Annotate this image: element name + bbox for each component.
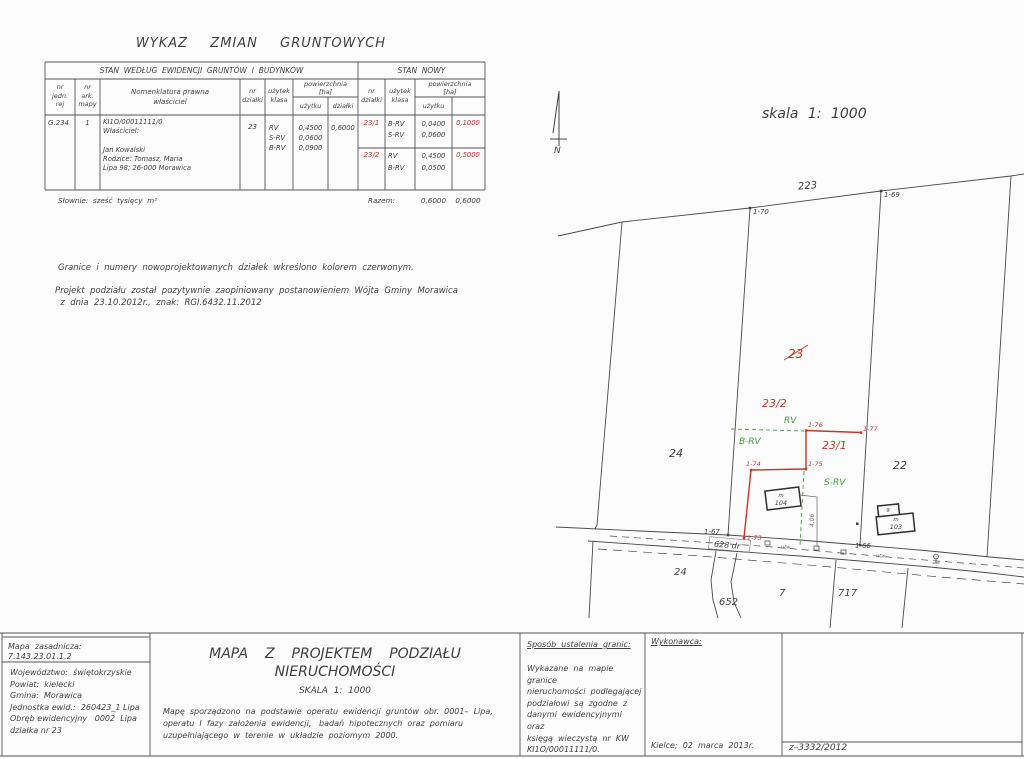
- boundary-point-markers: [727, 190, 883, 547]
- point-1-66: 1-66: [855, 542, 871, 550]
- sheet-scale: SKALA 1: 1000: [152, 686, 518, 698]
- point-1-74: 1-74: [746, 460, 761, 468]
- granice-title: Sposób ustalenia granic:: [527, 640, 642, 650]
- col-powierzchnia: powierzchnia [ha]: [294, 80, 357, 96]
- col-dzialki: działki: [329, 102, 357, 110]
- col-uzytku-new: użytku: [416, 102, 451, 110]
- landuse-srv: S-RV: [824, 478, 846, 488]
- point-1-77: 1-77: [863, 425, 879, 433]
- wykonawca-date: Kielce; 02 marca 2013r.: [651, 741, 779, 751]
- parcel-223: 223: [798, 180, 818, 193]
- lamp-icon: [933, 554, 940, 563]
- point-1-70: 1-70: [753, 208, 769, 216]
- building-9-number: 9: [886, 508, 890, 514]
- new-row1-klasy: B-RV S-RV: [388, 119, 414, 140]
- razem-label: Razem:: [368, 196, 395, 205]
- work-number: z–3332/2012: [789, 743, 909, 755]
- parcel-23-2: 23/2: [762, 397, 787, 410]
- north-label: N: [554, 146, 561, 156]
- col-ark: nr ark. mapy: [76, 83, 99, 109]
- cell-pow-dzialki: 0,6000: [329, 124, 357, 133]
- col-uzytek: użytek klasa: [266, 87, 292, 104]
- new-row2-nr: 23/2: [359, 151, 384, 160]
- dimension-value: 4,06: [809, 513, 816, 527]
- building-103-number: 103: [890, 523, 902, 531]
- road-utw-2: utw.: [876, 553, 887, 560]
- cell-ark: 1: [76, 119, 99, 128]
- slownie-note: Słownie: sześć tysięcy m²: [58, 196, 157, 205]
- parcel-24-top: 24: [669, 447, 683, 460]
- new-row2-pow-uzytku: 0,4500 0,0500: [416, 150, 451, 174]
- landuse-rv: RV: [784, 416, 797, 426]
- new-row1-pow-uzytku: 0,0400 0,0600: [416, 119, 451, 140]
- col-uzytku: użytku: [294, 102, 327, 110]
- approval-note: Projekt podziału został pozytywnie zaopi…: [55, 286, 535, 309]
- razem-uzytku: 0,6000: [416, 196, 451, 205]
- point-1-75: 1-75: [808, 460, 823, 468]
- building-104-number: 104: [775, 499, 787, 507]
- sheet-title: MAPA Z PROJEKTEM PODZIAŁU NIERUCHOMOŚCI: [152, 645, 518, 681]
- new-row2-pow-dzialki: 0,5000: [452, 151, 484, 160]
- new-row1-nr: 23/1: [359, 119, 384, 128]
- cell-pow-uzytku: 0,4500 0,0600 0,0900: [294, 124, 327, 153]
- change-table-title: WYKAZ ZMIAN GRUNTOWYCH: [106, 36, 416, 53]
- survey-map-sheet: N: [0, 0, 1024, 759]
- section-new-header: STAN NOWY: [359, 66, 484, 76]
- parcel-22: 22: [893, 459, 907, 472]
- sheet-description: Mapę sporządzono na podstawie operatu ew…: [163, 706, 513, 742]
- landuse-labels: RV B-RV S-RV: [739, 416, 846, 488]
- road-utw-1: utw.: [781, 544, 792, 551]
- parcel-7: 7: [779, 588, 786, 599]
- razem-dzialki: 0,6000: [452, 196, 484, 205]
- col-nomenklatura: Nomenklatura prawna właściciel: [101, 88, 239, 107]
- boundary-point-labels: 1-70 1-69 1-67 1-66 1-76 1-77 1-74 1-75 …: [704, 191, 900, 550]
- col-dzialka-new: nr działki: [359, 87, 384, 104]
- section-old-header: STAN WEDŁUG EWIDENCJI GRUNTÓW I BUDYNKÓW: [46, 66, 357, 76]
- landuse-brv: B-RV: [739, 437, 762, 447]
- col-jedn: nr jedn. rej: [46, 83, 74, 109]
- col-uzytek-new: użytek klasa: [386, 87, 414, 104]
- mapa-zasadnicza: Mapa zasadnicza: 7.143.23.01.1.2: [8, 642, 148, 663]
- new-row1-pow-dzialki: 0,1000: [452, 119, 484, 128]
- parcel-boundaries: [558, 174, 1024, 628]
- region-info: Województwo: świętokrzyskie Powiat: kiel…: [10, 667, 150, 737]
- parcel-23-1: 23/1: [822, 439, 847, 452]
- red-note: Granice i numery nowoprojektowanych dzia…: [58, 263, 528, 274]
- point-1-76: 1-76: [808, 421, 823, 429]
- col-dzialka: nr działki: [241, 87, 264, 104]
- parcel-24-bottom: 24: [674, 567, 687, 578]
- cell-uzytki: RV S-RV B-RV: [269, 124, 293, 153]
- cell-nomenklatura: KI1O/00011111/0 Właściciel: Jan Kowalski…: [103, 118, 239, 173]
- north-arrow-icon: [550, 91, 567, 146]
- point-1-69: 1-69: [884, 191, 900, 199]
- cell-dzialka: 23: [241, 123, 264, 132]
- road: [556, 527, 1024, 584]
- new-row2-klasy: RV B-RV: [388, 150, 414, 174]
- col-powierzchnia-new: powierzchnia [ha]: [416, 80, 484, 96]
- wykonawca-title: Wykonawca:: [651, 637, 776, 647]
- map-scale: skala 1: 1000: [762, 106, 867, 122]
- point-1-67: 1-67: [704, 528, 720, 536]
- point-1-73: 1-73: [747, 534, 762, 542]
- parcel-652: 652: [719, 597, 738, 608]
- parcel-717: 717: [838, 588, 858, 599]
- cell-jedn: G.234: [48, 119, 75, 128]
- granice-body: Wykazane na mapie granice nieruchomości …: [527, 663, 642, 756]
